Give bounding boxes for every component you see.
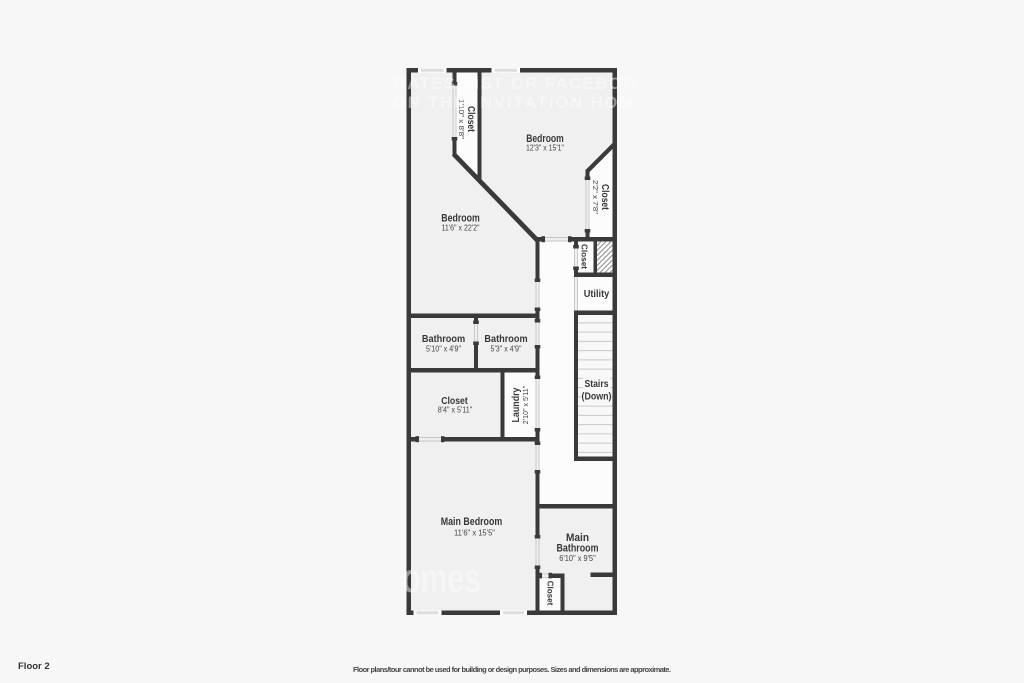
svg-text:Floor 2: Floor 2 [18,661,50,672]
svg-text:2'10" x 5'11": 2'10" x 5'11" [521,385,530,424]
svg-text:8'4" x 5'11": 8'4" x 5'11" [438,406,473,415]
svg-text:(Down): (Down) [582,391,612,403]
svg-text:11'6" x 22'2": 11'6" x 22'2" [442,224,480,233]
svg-text:Main Bedroom: Main Bedroom [441,516,503,528]
svg-text:11'6" x 15'5": 11'6" x 15'5" [454,529,495,538]
svg-text:Closet: Closet [580,244,590,269]
svg-text:omes: omes [402,555,481,601]
svg-text:Floor plans/tour cannot be use: Floor plans/tour cannot be used for buil… [353,665,671,674]
svg-text:2'2" x 7'8": 2'2" x 7'8" [591,180,598,215]
svg-text:Bathroom: Bathroom [557,543,599,555]
svg-text:Closet: Closet [599,184,610,211]
svg-text:GATES LIST OR FACEBOO: GATES LIST OR FACEBOO [393,75,636,93]
svg-text:Stairs: Stairs [585,378,609,390]
svg-text:5'3" x 4'9": 5'3" x 4'9" [491,345,522,354]
svg-text:12'3" x 15'1": 12'3" x 15'1" [526,144,564,153]
svg-text:5'10" x 4'9": 5'10" x 4'9" [426,345,461,354]
svg-text:ON THE INVITATION HOM: ON THE INVITATION HOM [393,94,633,112]
svg-text:Utility: Utility [584,288,610,300]
svg-text:Bathroom: Bathroom [484,333,527,345]
svg-text:Closet: Closet [546,581,556,606]
svg-text:6'10" x 9'5": 6'10" x 9'5" [559,554,596,563]
svg-text:Bathroom: Bathroom [422,333,465,345]
